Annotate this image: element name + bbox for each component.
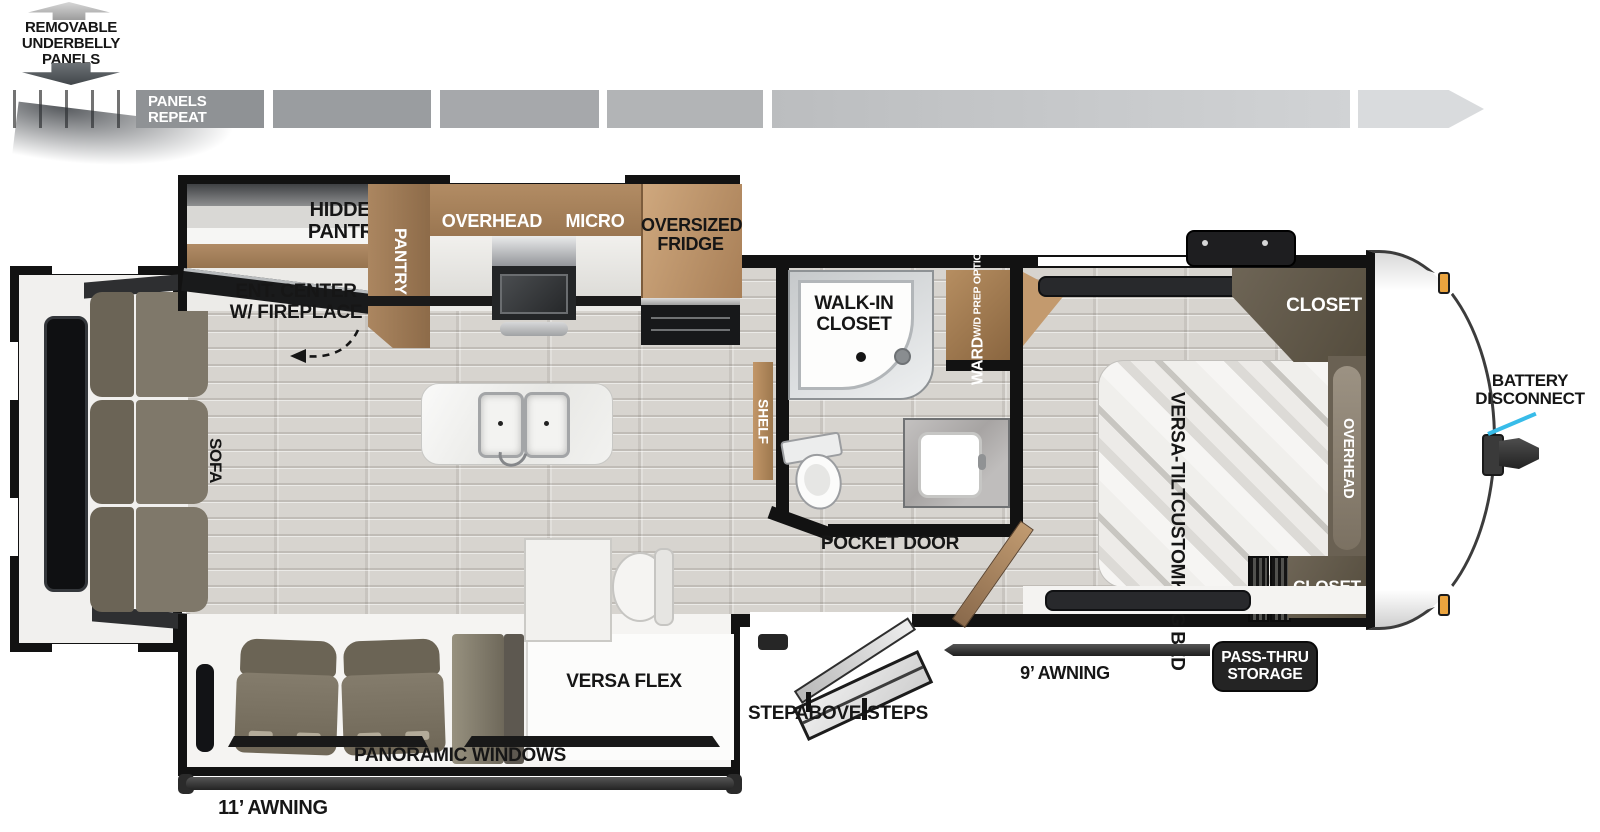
sink-drain [544,421,549,426]
slide-side-window [196,664,214,752]
seat-back [343,638,440,677]
vanity-faucet [978,454,986,470]
steps-label: STEPABOVE-STEPS [748,704,928,725]
entertainment-center-label: ENT. CENTER W/ FIREPLACE [210,282,382,323]
sink-drain [498,421,503,426]
marker-light [1438,594,1450,616]
versa-flex-label: VERSA FLEX [548,672,700,693]
hitch-coupler [1499,438,1539,469]
awning-9ft-label: 9’ AWNING [1010,664,1120,683]
bed-line: VERSA-TILT [1166,392,1187,499]
rear-slide-window-slit [52,644,138,652]
versa-desk [524,538,612,642]
fridge-line: OVERSIZED [641,216,740,235]
ent-center-line: ENT. CENTER [210,282,382,303]
fridge-base [641,305,740,345]
pantry-label: PANTRY [378,196,422,326]
sofa-back-cushion [90,292,134,397]
compartment-screw [1202,240,1208,246]
seat-back [240,638,337,677]
sofa [90,292,208,612]
wd-prep-label: W/D PREP OPTION [972,245,983,337]
vanity [903,418,1010,508]
fridge-vent-line [651,329,730,331]
dashed-arrow-icon [288,326,364,368]
legend-line: UNDERBELLY [6,36,136,52]
panels-repeat-label: PANELS REPEAT [136,90,264,126]
shower-knob [894,348,911,365]
sofa-label: SOFA [198,418,232,504]
pass-thru-line: STORAGE [1228,667,1303,684]
bath-wall-right [1010,264,1023,537]
wardrobe-label: WARD W/D PREP OPTION [946,270,1010,360]
stove [492,266,576,320]
exterior-compartment [1186,230,1296,267]
microwave-label: MICRO [556,212,634,231]
pass-thru-line: PASS-THRU [1221,650,1308,667]
overhead-cabinet-label: OVERHEAD [436,212,548,231]
shelf-label: SHELF [753,370,773,472]
walk-in-closet-label: WALK-IN CLOSET [794,294,914,335]
ent-center-line: W/ FIREPLACE [210,303,382,324]
panels-repeat-panel: PANELS REPEAT [136,90,264,128]
awning-11ft-bar [186,777,734,790]
vanity-sink [918,432,982,498]
kitchen-slide-window-slit [450,175,625,183]
bedroom-overhead-label: OVERHEAD [1334,398,1360,518]
king-bed-label: VERSA-TILT CUSTOM KING BED [1138,392,1214,560]
underbelly-panel [273,90,431,128]
step-bracket [758,634,788,650]
rear-slide-window-slit [10,342,18,400]
panels-repeat-line: PANELS [148,94,264,110]
pass-thru-storage-badge: PASS-THRU STORAGE [1212,641,1318,692]
sofa-back-cushion [90,400,134,505]
entry-door-opening [750,612,912,629]
rear-window [44,316,88,592]
underbelly-panel [440,90,599,128]
panels-repeat-line: REPEAT [148,110,264,126]
bedroom-window-top [1038,276,1246,297]
awning-9ft-bar [944,644,1210,656]
sofa-back-cushion [90,507,134,612]
range-hood [492,236,576,266]
battery-line: BATTERY [1462,372,1598,390]
sofa-seat-section [90,507,208,612]
toilet [780,431,852,514]
bedroom-window-bottom [1045,590,1251,611]
bed-line: CUSTOM [1166,499,1187,579]
underbelly-panel-long [772,90,1350,128]
king-bed [1098,360,1332,588]
pocket-door-label: POCKET DOOR [806,534,974,555]
shower-drain [856,352,866,362]
walk-in-line: WALK-IN [794,294,914,315]
ward-label: WARD [969,337,986,385]
up-arrow-icon [28,2,110,20]
rear-slide-window-slit [52,266,138,274]
walk-in-line: CLOSET [794,315,914,336]
front-cap [1366,250,1496,630]
removable-panels-note: REMOVABLE UNDERBELLY PANELS [6,20,136,69]
fridge-vent-line [651,317,730,319]
underbelly-panel [607,90,763,128]
stove-drawer [500,322,568,336]
closet-top-label: CLOSET [1282,296,1366,317]
fridge-trim [641,298,740,305]
battery-line: DISCONNECT [1462,390,1598,408]
legend-line: REMOVABLE [6,20,136,36]
sofa-seat-section [90,400,208,505]
awning-11ft-label: 11’ AWNING [203,798,343,820]
sofa-seat-cushion [136,507,208,612]
rv-floorplan-diagram: REMOVABLE UNDERBELLY PANELS PANELS REPEA… [0,0,1600,832]
battery-disconnect-label: BATTERY DISCONNECT [1462,372,1598,409]
fridge-label: OVERSIZED FRIDGE [641,216,740,255]
underbelly-panel-arrow [1358,90,1484,128]
panoramic-windows-label: PANORAMIC WINDOWS [344,746,576,767]
sink-basin-right [524,392,570,458]
marker-light [1438,272,1450,294]
compartment-screw [1262,240,1268,246]
fridge-line: FRIDGE [641,235,740,254]
hidden-pantry-cabinet [187,244,369,268]
rear-slide-window-slit [10,498,18,556]
desk-chair-back [654,548,674,626]
stove-cooktop [500,274,568,314]
